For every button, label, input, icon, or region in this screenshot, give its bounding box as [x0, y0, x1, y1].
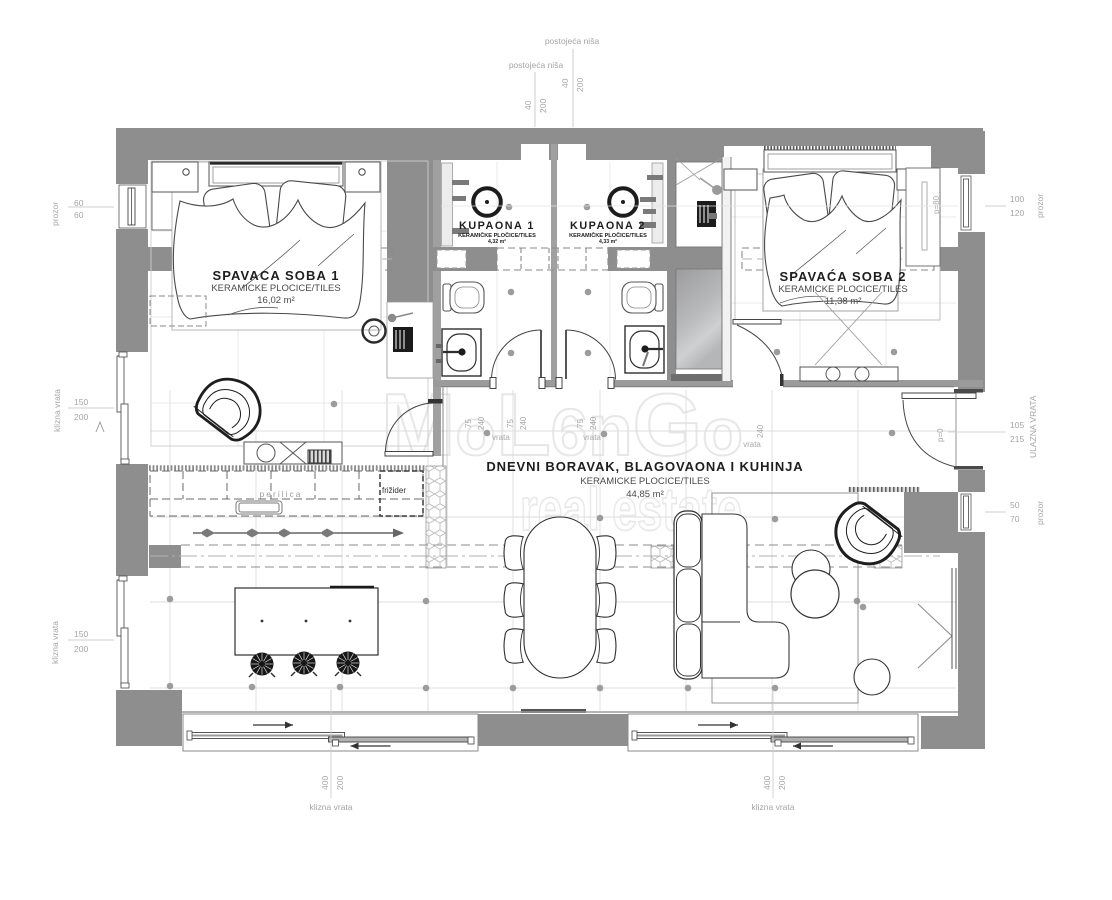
svg-text:4,32 m²: 4,32 m² — [488, 239, 506, 245]
svg-text:70: 70 — [1010, 514, 1020, 524]
svg-text:perilica: perilica — [260, 489, 303, 499]
svg-text:100: 100 — [1010, 194, 1024, 204]
svg-text:50: 50 — [1010, 500, 1020, 510]
svg-text:SPAVACA SOBA 1: SPAVACA SOBA 1 — [212, 268, 339, 283]
svg-text:KUPAONA 2: KUPAONA 2 — [570, 220, 646, 232]
svg-text:KUPAONA 1: KUPAONA 1 — [459, 220, 535, 232]
svg-text:vrata: vrata — [583, 433, 601, 442]
svg-text:200: 200 — [538, 99, 548, 113]
svg-text:215: 215 — [1010, 434, 1024, 444]
svg-text:44,85 m²: 44,85 m² — [626, 489, 664, 500]
svg-text:klizna vrata: klizna vrata — [310, 802, 353, 812]
svg-text:120: 120 — [1010, 208, 1024, 218]
svg-text:400: 400 — [320, 776, 330, 790]
svg-text:vrata: vrata — [743, 440, 761, 449]
svg-text:60: 60 — [74, 210, 84, 220]
svg-text:400: 400 — [762, 776, 772, 790]
svg-text:200: 200 — [74, 644, 88, 654]
svg-text:240: 240 — [756, 424, 765, 438]
svg-text:240: 240 — [477, 416, 486, 430]
svg-text:prozor: prozor — [1035, 194, 1045, 218]
svg-text:KERAMIČKE PLOČICE/TILES: KERAMIČKE PLOČICE/TILES — [458, 232, 536, 239]
svg-text:16,02 m²: 16,02 m² — [257, 295, 295, 306]
svg-text:200: 200 — [575, 78, 585, 92]
svg-text:40: 40 — [523, 100, 533, 110]
svg-text:KERAMIČKE PLOČICE/TILES: KERAMIČKE PLOČICE/TILES — [569, 232, 647, 239]
svg-text:200: 200 — [335, 776, 345, 790]
svg-text:vrata: vrata — [492, 433, 510, 442]
svg-text:postojeća niša: postojeća niša — [545, 36, 600, 46]
svg-text:200: 200 — [74, 412, 88, 422]
svg-text:150: 150 — [74, 629, 88, 639]
svg-text:KERAMICKE PLOCICE/TILES: KERAMICKE PLOCICE/TILES — [580, 476, 709, 487]
svg-text:150: 150 — [74, 397, 88, 407]
svg-text:SPAVAĆA SOBA 2: SPAVAĆA SOBA 2 — [779, 269, 906, 284]
svg-text:klizna vrata: klizna vrata — [50, 621, 60, 664]
svg-text:200: 200 — [777, 776, 787, 790]
svg-text:KERAMICKE PLOCICE/TILES: KERAMICKE PLOCICE/TILES — [778, 284, 907, 295]
svg-text:4,33 m²: 4,33 m² — [599, 239, 617, 245]
svg-text:105: 105 — [1010, 420, 1024, 430]
svg-text:klizna vrata: klizna vrata — [52, 389, 62, 432]
svg-text:frižider: frižider — [382, 486, 406, 495]
svg-text:240: 240 — [589, 416, 598, 430]
svg-text:40: 40 — [560, 78, 570, 88]
svg-text:prozor: prozor — [50, 202, 60, 226]
svg-text:240: 240 — [519, 416, 528, 430]
svg-text:11,38 m²: 11,38 m² — [825, 296, 862, 307]
svg-text:prozor: prozor — [1035, 501, 1045, 525]
svg-text:KERAMICKE PLOCICE/TILES: KERAMICKE PLOCICE/TILES — [211, 283, 340, 294]
svg-text:DNEVNI BORAVAK, BLAGOVAONA I K: DNEVNI BORAVAK, BLAGOVAONA I KUHINJA — [486, 459, 803, 474]
svg-text:60: 60 — [74, 198, 84, 208]
svg-text:75: 75 — [576, 419, 585, 428]
svg-text:p=0: p=0 — [936, 428, 945, 442]
svg-text:75: 75 — [464, 419, 473, 428]
svg-text:p=80: p=80 — [932, 195, 941, 214]
svg-text:75: 75 — [506, 419, 515, 428]
svg-text:postojeća niša: postojeća niša — [509, 60, 564, 70]
svg-text:klizna vrata: klizna vrata — [752, 802, 795, 812]
svg-text:ULAZNA VRATA: ULAZNA VRATA — [1028, 395, 1038, 458]
